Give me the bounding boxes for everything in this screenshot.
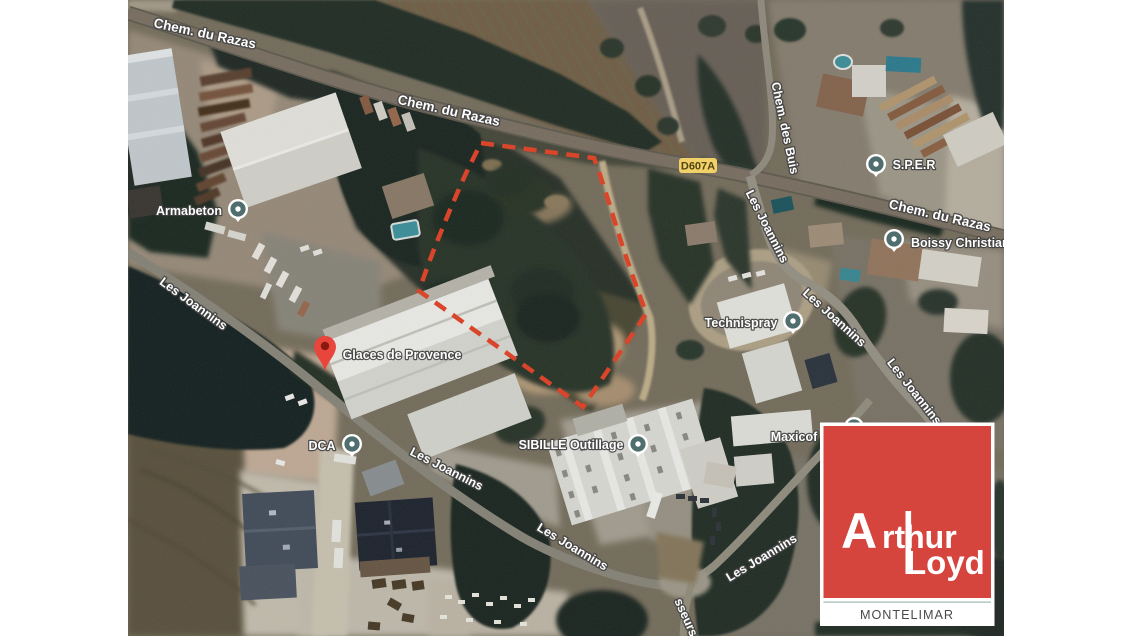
svg-text:Glaces de Provence: Glaces de Provence xyxy=(343,348,462,362)
svg-text:Boissy Christian: Boissy Christian xyxy=(911,236,1010,250)
svg-text:A: A xyxy=(841,503,877,559)
svg-text:DCA: DCA xyxy=(308,439,335,453)
svg-text:MONTELIMAR: MONTELIMAR xyxy=(860,607,954,622)
svg-text:SIBILLE Outillage: SIBILLE Outillage xyxy=(519,438,624,452)
svg-text:D607A: D607A xyxy=(681,161,715,173)
svg-text:S.P.E.R: S.P.E.R xyxy=(893,158,936,172)
svg-text:Loyd: Loyd xyxy=(906,544,985,581)
svg-text:Armabeton: Armabeton xyxy=(156,204,222,218)
svg-text:Technispray: Technispray xyxy=(705,316,778,330)
svg-text:Maxicof: Maxicof xyxy=(771,430,818,444)
